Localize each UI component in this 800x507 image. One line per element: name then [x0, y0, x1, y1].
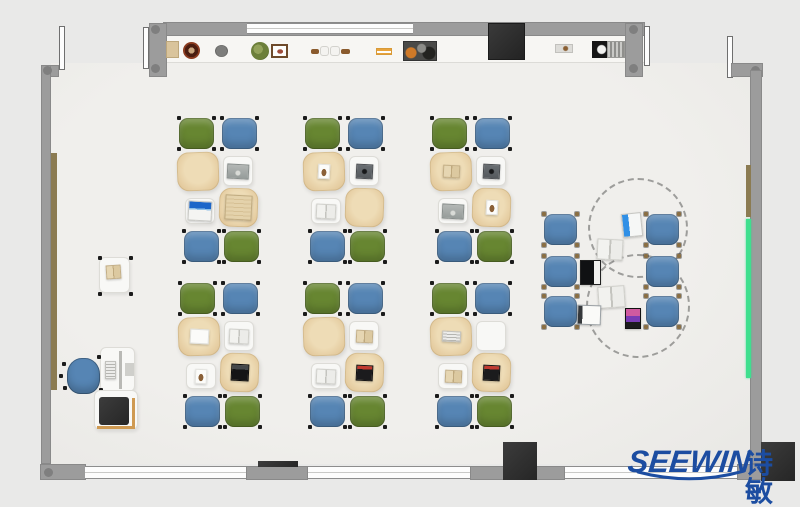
furniture-layer: [0, 0, 800, 507]
chair-leg: [677, 254, 681, 258]
chair-leg: [338, 147, 342, 151]
chair-leg: [346, 312, 350, 316]
round-group-chair: [544, 296, 577, 327]
cluster-r2c1-chair-br: [225, 396, 260, 427]
shelf-item-frame: [271, 44, 288, 58]
chair-leg: [348, 229, 352, 233]
chair-leg: [381, 116, 385, 120]
chair-leg: [308, 229, 312, 233]
chair-leg: [338, 116, 342, 120]
chair-leg: [343, 260, 347, 264]
item-book-gray: [596, 238, 623, 260]
chair-leg: [183, 425, 187, 429]
chair-leg: [644, 243, 648, 247]
item-paper: [189, 329, 209, 345]
cluster-r2c1-chair-tr: [223, 283, 258, 314]
chair-leg: [256, 312, 260, 316]
chair-leg: [475, 260, 479, 264]
cluster-r1c3-chair-tl: [432, 118, 467, 149]
chair-leg: [510, 260, 514, 264]
chair-leg: [473, 116, 477, 120]
chair-leg: [346, 116, 350, 120]
chair-leg: [308, 394, 312, 398]
brand-logo-swoosh: [636, 470, 746, 484]
shelf-item-stick-brown: [311, 49, 319, 54]
chair-leg: [542, 254, 546, 258]
office-chair-leg: [59, 374, 63, 378]
chair-leg: [346, 281, 350, 285]
chair-leg: [220, 116, 224, 120]
brand-logo: SEEWIN 诗敏: [628, 444, 800, 484]
chair-leg: [575, 243, 579, 247]
chair-leg: [381, 147, 385, 151]
shelf-item-vent-gray: [607, 41, 625, 58]
chair-leg: [258, 394, 262, 398]
cluster-r2c2-desk-A: [302, 316, 345, 356]
chair-leg: [575, 254, 579, 258]
item-photo: [318, 164, 331, 180]
chair-leg: [218, 425, 222, 429]
chair-leg: [430, 147, 434, 151]
chair-leg: [256, 281, 260, 285]
chair-leg: [178, 281, 182, 285]
office-chair-leg: [63, 386, 67, 390]
chair-leg: [213, 312, 217, 316]
chair-leg: [303, 312, 307, 316]
chair-leg: [435, 260, 439, 264]
teacher-office-chair: [67, 358, 100, 394]
chair-leg: [470, 425, 474, 429]
shelf-item-bowl-white: [320, 46, 329, 56]
cluster-r1c2-chair-tr: [348, 118, 383, 149]
item-keyboard: [441, 331, 461, 343]
item-tablet-dark: [355, 163, 373, 179]
chair-leg: [183, 394, 187, 398]
chair-leg: [348, 260, 352, 264]
chair-leg: [430, 312, 434, 316]
chair-leg: [129, 256, 133, 260]
cluster-r2c2-chair-tl: [305, 283, 340, 314]
round-group-chair: [544, 256, 577, 287]
chair-leg: [212, 147, 216, 151]
chair-leg: [475, 229, 479, 233]
chair-leg: [508, 312, 512, 316]
chair-leg: [182, 229, 186, 233]
chair-leg: [575, 294, 579, 298]
chair-leg: [338, 312, 342, 316]
round-group-chair: [544, 214, 577, 245]
chair-leg: [381, 281, 385, 285]
chair-leg: [644, 285, 648, 289]
chair-leg: [343, 229, 347, 233]
cluster-r2c3-chair-tr: [475, 283, 510, 314]
chair-leg: [465, 281, 469, 285]
chair-leg: [381, 312, 385, 316]
shelf-item-plant-green: [251, 42, 269, 60]
chair-leg: [644, 212, 648, 216]
item-book-tan: [442, 165, 460, 179]
office-chair-leg: [62, 362, 66, 366]
shelf-item-pot-gray: [215, 45, 228, 57]
chair-leg: [470, 260, 474, 264]
chair-leg: [677, 243, 681, 247]
chair-leg: [508, 281, 512, 285]
chair-leg: [465, 116, 469, 120]
chair-leg: [343, 425, 347, 429]
cluster-r1c3-chair-bl: [437, 231, 472, 262]
chair-leg: [98, 292, 102, 296]
chair-leg: [473, 312, 477, 316]
chair-leg: [222, 260, 226, 264]
cluster-r1c1-chair-bl: [184, 231, 219, 262]
chair-leg: [470, 394, 474, 398]
chair-leg: [508, 116, 512, 120]
chair-leg: [510, 425, 514, 429]
cluster-r2c2-chair-bl: [310, 396, 345, 427]
cluster-r2c3-chair-tl: [432, 283, 467, 314]
item-book-tan: [444, 369, 462, 383]
chair-leg: [308, 260, 312, 264]
chair-leg: [575, 285, 579, 289]
item-book-tan: [355, 329, 373, 343]
chair-leg: [430, 281, 434, 285]
shelf-item-tray-dark: [403, 41, 437, 61]
item-tablet-dark: [482, 163, 500, 179]
chair-leg: [508, 147, 512, 151]
cluster-r2c1-chair-bl: [185, 396, 220, 427]
shelf-item-cabinet-black: [592, 41, 608, 58]
chair-leg: [465, 147, 469, 151]
chair-leg: [383, 394, 387, 398]
chair-leg: [435, 229, 439, 233]
item-book-gray: [597, 285, 625, 309]
chair-leg: [542, 325, 546, 329]
classroom-floorplan: SEEWIN 诗敏: [0, 0, 800, 507]
item-photo: [195, 368, 208, 384]
office-chair-leg: [97, 355, 101, 359]
item-laptop-gray: [442, 203, 465, 219]
chair-leg: [257, 260, 261, 264]
chair-leg: [435, 394, 439, 398]
cluster-r1c1-chair-br: [224, 231, 259, 262]
chair-leg: [542, 212, 546, 216]
chair-leg: [465, 312, 469, 316]
chair-leg: [212, 116, 216, 120]
chair-leg: [346, 147, 350, 151]
item-book-gray: [316, 368, 337, 384]
chair-leg: [217, 229, 221, 233]
chair-leg: [257, 229, 261, 233]
chair-leg: [542, 285, 546, 289]
chair-leg: [644, 294, 648, 298]
item-laptop-tan: [224, 194, 252, 220]
chair-leg: [177, 116, 181, 120]
chair-leg: [677, 294, 681, 298]
item-laptop-black-w: [580, 260, 601, 285]
brand-logo-cjk: 诗敏: [745, 450, 800, 506]
teacher-pad: [125, 363, 134, 376]
chair-leg: [129, 292, 133, 296]
shelf-item-stick-brown: [341, 49, 350, 54]
item-laptop-black: [230, 364, 249, 382]
chair-leg: [575, 212, 579, 216]
chair-leg: [308, 425, 312, 429]
chair-leg: [473, 147, 477, 151]
item-laptop-red: [356, 364, 374, 381]
item-tablet-blue: [621, 212, 643, 238]
chair-leg: [223, 394, 227, 398]
chair-leg: [510, 229, 514, 233]
item-book-gray: [316, 203, 337, 219]
chair-leg: [435, 425, 439, 429]
item-book-tan: [106, 264, 122, 279]
cluster-r1c3-chair-br: [477, 231, 512, 262]
round-group-chair: [646, 256, 679, 287]
shelf-item-sticks-orange: [376, 48, 392, 55]
chair-leg: [475, 394, 479, 398]
item-keyboard: [105, 361, 116, 379]
chair-leg: [430, 116, 434, 120]
cluster-r1c2-chair-bl: [310, 231, 345, 262]
cluster-r2c3-chair-bl: [437, 396, 472, 427]
chair-leg: [677, 212, 681, 216]
chair-leg: [343, 394, 347, 398]
cluster-r1c2-chair-br: [350, 231, 385, 262]
cluster-r2c3-desk-B: [476, 321, 506, 351]
item-laptop-blue: [187, 200, 212, 221]
cluster-r1c2-desk-D: [344, 187, 384, 227]
chair-leg: [348, 425, 352, 429]
chair-leg: [221, 281, 225, 285]
chair-leg: [348, 394, 352, 398]
chair-leg: [255, 147, 259, 151]
chair-leg: [383, 229, 387, 233]
item-laptop-red: [483, 364, 501, 381]
cluster-r2c1-chair-tl: [180, 283, 215, 314]
item-book-gray: [229, 328, 250, 344]
chair-leg: [303, 116, 307, 120]
item-tablet-pink: [625, 308, 641, 329]
chair-leg: [383, 260, 387, 264]
shelf-item-bowl-white: [330, 46, 340, 56]
chair-leg: [217, 260, 221, 264]
chair-leg: [218, 394, 222, 398]
item-laptop-white: [577, 305, 602, 326]
round-group-chair: [646, 214, 679, 245]
printer-table-trim-h: [97, 426, 135, 429]
cluster-r2c2-chair-tr: [348, 283, 383, 314]
chair-leg: [575, 325, 579, 329]
printer-table-trim-v: [132, 398, 135, 429]
cluster-r1c2-chair-tl: [305, 118, 340, 149]
shelf-item-pot-brown: [183, 42, 200, 59]
shelf-item-box-small: [555, 44, 573, 53]
chair-leg: [178, 312, 182, 316]
cluster-r1c1-chair-tr: [222, 118, 257, 149]
chair-leg: [222, 229, 226, 233]
chair-leg: [677, 325, 681, 329]
chair-leg: [177, 147, 181, 151]
chair-leg: [98, 256, 102, 260]
item-laptop-gray: [227, 163, 250, 179]
chair-leg: [644, 254, 648, 258]
cluster-r2c3-chair-br: [477, 396, 512, 427]
chair-leg: [221, 312, 225, 316]
chair-leg: [470, 229, 474, 233]
round-group-chair: [646, 296, 679, 327]
chair-leg: [303, 147, 307, 151]
printer: [99, 397, 129, 425]
chair-leg: [510, 394, 514, 398]
chair-leg: [213, 281, 217, 285]
chair-leg: [338, 281, 342, 285]
chair-leg: [303, 281, 307, 285]
cluster-r1c1-chair-tl: [179, 118, 214, 149]
cluster-r2c2-chair-br: [350, 396, 385, 427]
chair-leg: [182, 260, 186, 264]
chair-leg: [383, 425, 387, 429]
chair-leg: [473, 281, 477, 285]
teacher-monitor: [119, 351, 122, 389]
cluster-r1c3-chair-tr: [475, 118, 510, 149]
shelf-item-box-tan: [166, 41, 179, 58]
chair-leg: [220, 147, 224, 151]
chair-leg: [644, 325, 648, 329]
item-photo: [485, 200, 498, 216]
cluster-r1c1-desk-A: [176, 151, 219, 191]
chair-leg: [542, 294, 546, 298]
chair-leg: [255, 116, 259, 120]
chair-leg: [677, 285, 681, 289]
chair-leg: [542, 243, 546, 247]
chair-leg: [258, 425, 262, 429]
chair-leg: [475, 425, 479, 429]
chair-leg: [223, 425, 227, 429]
